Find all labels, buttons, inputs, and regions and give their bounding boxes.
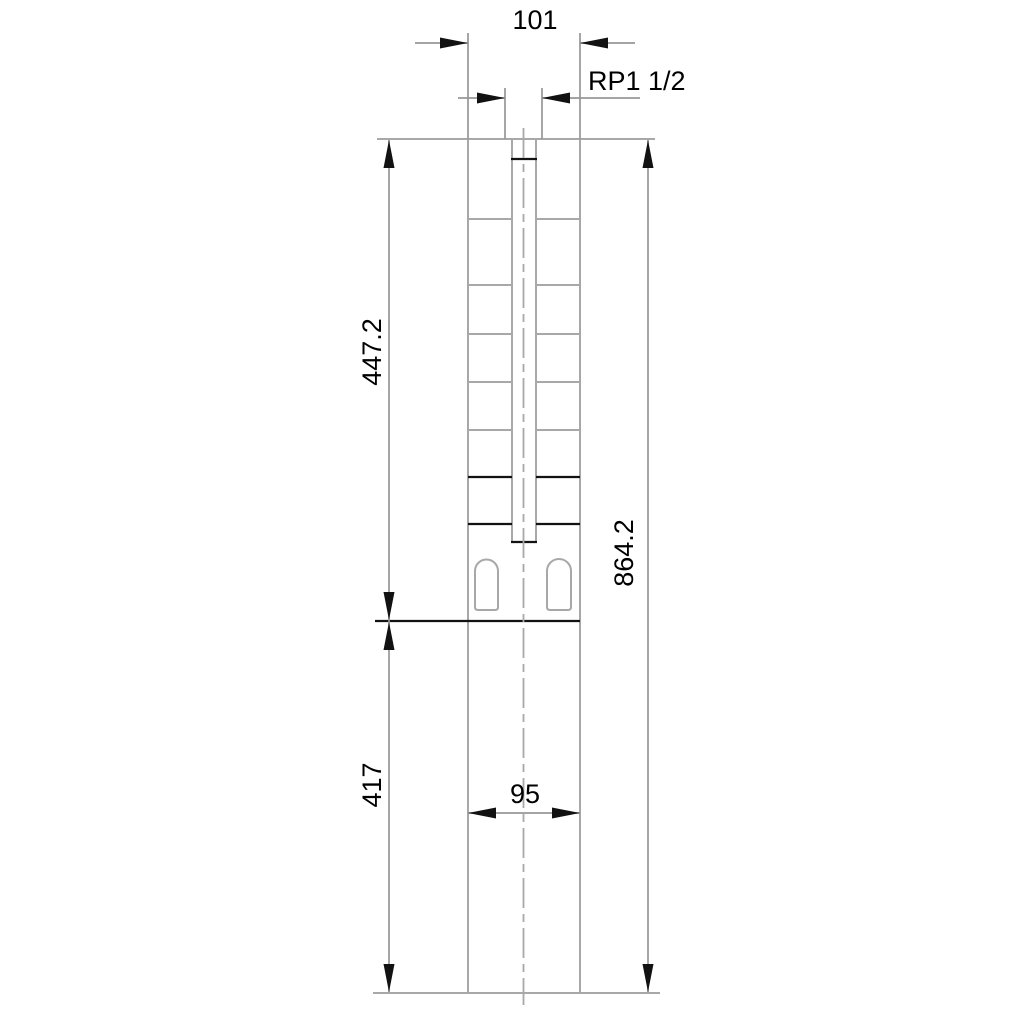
arrow [580, 38, 608, 49]
cable-guard-slot-right [547, 559, 571, 610]
arrow [384, 622, 395, 650]
arrow [643, 140, 654, 168]
dim-label-thread: RP1 1/2 [588, 66, 686, 96]
arrow [552, 808, 580, 819]
arrow [477, 93, 505, 104]
cable-guard-slot-left [475, 560, 498, 611]
arrow [440, 38, 468, 49]
arrow [384, 592, 395, 620]
arrow [468, 808, 496, 819]
dim-label-lower-width: 95 [510, 779, 540, 809]
arrow [643, 964, 654, 992]
dimension-labels: 101 RP1 1/2 447.2 864.2 417 95 [357, 5, 686, 809]
dimension-lines [389, 33, 648, 992]
pump-dimensional-drawing-page: 101 RP1 1/2 447.2 864.2 417 95 [0, 0, 1024, 1024]
dim-label-lower-height: 417 [357, 762, 387, 807]
arrow [384, 140, 395, 168]
dim-label-upper-height: 447.2 [357, 318, 387, 386]
dim-ext-101 [468, 33, 580, 139]
pump-dimensional-drawing: 101 RP1 1/2 447.2 864.2 417 95 [0, 0, 1024, 1024]
pump-feature-lines [375, 159, 580, 621]
dim-label-overall-height: 864.2 [609, 519, 639, 587]
dim-label-top-width: 101 [512, 5, 557, 35]
arrow [542, 93, 570, 104]
arrow [384, 964, 395, 992]
dimension-arrows [384, 38, 654, 993]
